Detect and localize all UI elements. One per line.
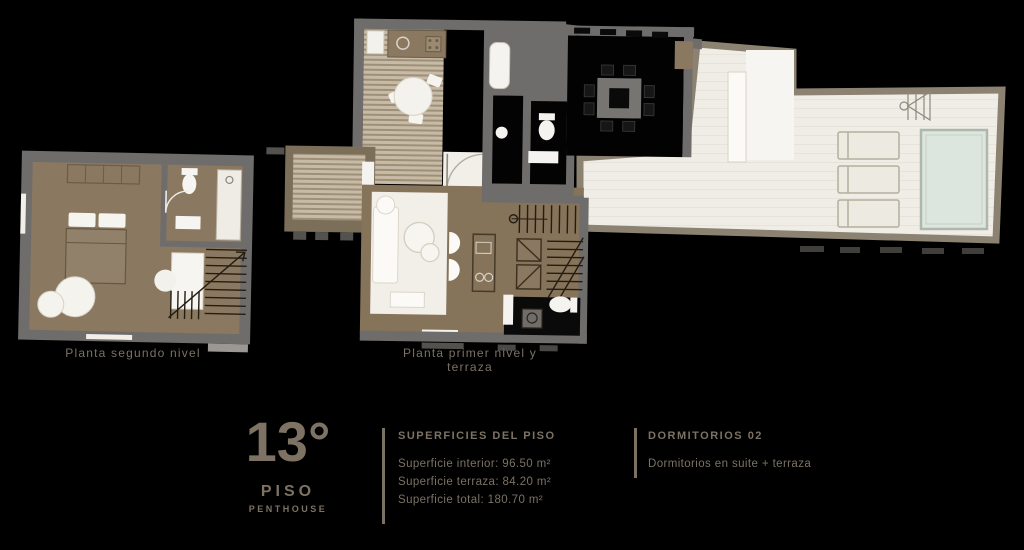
lounger-icons [838,132,899,227]
surfaces-heading: SUPERFICIES DEL PISO [398,430,628,442]
shower-icon [216,170,241,240]
dining-room [558,25,694,157]
planter-column [728,72,746,162]
legend-divider-2 [634,428,637,478]
details-line: Dormitorios en suite + terraza [648,458,908,470]
side-table-icon [421,243,439,261]
terrace-exterior-steps [800,246,984,254]
powder-room [503,295,581,336]
cabinet [675,41,693,69]
toilet-icon [549,296,577,312]
balcony [265,145,375,241]
kitchen-counter [388,30,446,58]
surface-line: Superficie interior: 96.50 m² [398,458,628,470]
floor-sub-label: PENTHOUSE [238,504,338,514]
bath-door [503,295,513,325]
exterior-step [208,344,248,353]
details-heading: DORMITORIOS 02 [648,430,878,442]
wall [482,194,584,203]
kitchen-island [472,234,495,291]
terrace-covered-area [746,50,794,160]
floorplan-page: Planta segundo nivel Planta primer nivel… [0,0,1024,550]
legend-divider-1 [382,428,385,524]
stove-icon [426,37,441,52]
pool-icon [921,130,987,229]
service-zone [482,28,576,199]
surface-line: Superficie total: 180.70 m² [398,494,628,506]
washbasin-icon [175,216,200,230]
window [20,194,26,234]
sofa-icon [373,196,399,283]
lower-plan-label: Planta primer nivel y terraza [390,346,550,374]
surface-line: Superficie terraza: 84.20 m² [398,476,628,488]
floor-number: 13° [238,414,338,470]
floor-word: PISO [238,483,338,501]
upper-level-plan [18,151,254,353]
vanity [528,151,558,163]
bathtub-icon [489,42,510,88]
tv-bench [390,292,424,307]
fridge-icon [367,31,384,54]
washer-icon [522,309,542,328]
toilet-icon [539,113,555,140]
upper-plan-label: Planta segundo nivel [58,346,208,360]
window [86,334,132,340]
ottoman-icon [38,291,65,318]
wardrobe-icon [67,165,139,185]
door-arc [443,152,484,191]
